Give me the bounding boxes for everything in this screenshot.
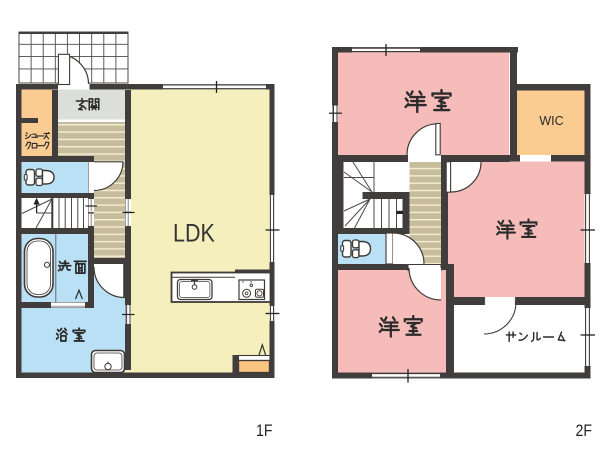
svg-text:WIC: WIC <box>539 114 563 128</box>
svg-text:1F: 1F <box>256 421 273 440</box>
svg-text:2F: 2F <box>576 421 593 440</box>
svg-text:LDK: LDK <box>173 219 215 247</box>
